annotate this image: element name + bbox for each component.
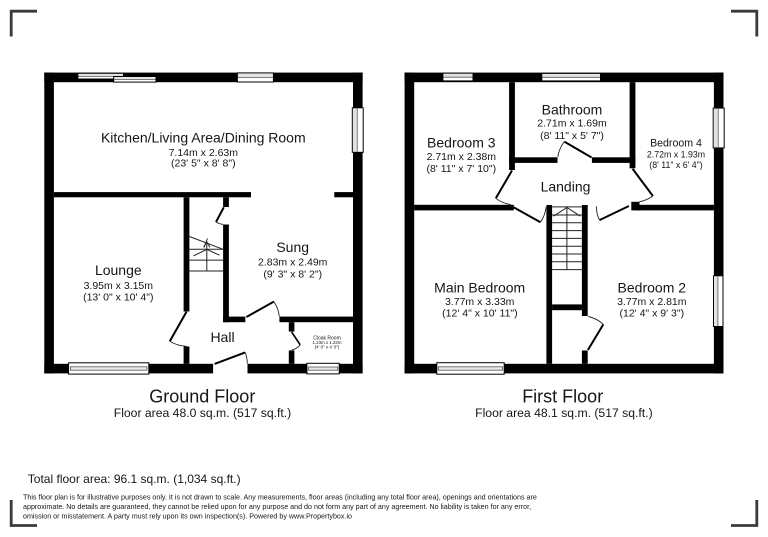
svg-text:3.77m x 2.81m: 3.77m x 2.81m xyxy=(617,296,687,308)
svg-text:(4' 0" x 4' 0"): (4' 0" x 4' 0") xyxy=(315,345,340,350)
svg-text:Bedroom 3: Bedroom 3 xyxy=(427,134,496,150)
svg-text:Hall: Hall xyxy=(210,329,234,345)
svg-text:(12' 4" x 9' 3"): (12' 4" x 9' 3") xyxy=(620,308,685,320)
svg-text:Kitchen/Living Area/Dining Roo: Kitchen/Living Area/Dining Room xyxy=(101,129,306,145)
svg-text:(12' 4" x 10' 11"): (12' 4" x 10' 11") xyxy=(442,308,517,320)
svg-text:First Floor: First Floor xyxy=(522,387,603,407)
svg-text:(8' 11" x 5' 7"): (8' 11" x 5' 7") xyxy=(540,130,604,142)
svg-text:Lounge: Lounge xyxy=(95,262,142,278)
svg-text:omission or misstatement. A pa: omission or misstatement. A party must r… xyxy=(23,513,352,521)
svg-text:3.77m x 3.33m: 3.77m x 3.33m xyxy=(445,296,515,308)
svg-text:(23' 5" x 8' 8"): (23' 5" x 8' 8") xyxy=(171,158,236,170)
svg-text:Landing: Landing xyxy=(541,179,591,195)
svg-text:3.95m x 3.15m: 3.95m x 3.15m xyxy=(84,280,154,292)
svg-text:approximate. No details are gu: approximate. No details are guaranteed, … xyxy=(23,503,531,511)
svg-text:Main Bedroom: Main Bedroom xyxy=(434,280,525,296)
svg-text:Floor area 48.0 sq.m. (517 sq.: Floor area 48.0 sq.m. (517 sq.ft.) xyxy=(114,406,291,420)
svg-text:2.72m x 1.93m: 2.72m x 1.93m xyxy=(647,150,705,160)
svg-text:2.83m x 2.49m: 2.83m x 2.49m xyxy=(258,257,328,269)
svg-text:This floor plan is for illustr: This floor plan is for illustrative purp… xyxy=(23,493,537,501)
svg-text:(8' 11" x 7' 10"): (8' 11" x 7' 10") xyxy=(426,163,496,175)
svg-text:Ground Floor: Ground Floor xyxy=(149,387,255,407)
svg-text:Floor area 48.1 sq.m. (517 sq.: Floor area 48.1 sq.m. (517 sq.ft.) xyxy=(475,406,652,420)
svg-text:Bathroom: Bathroom xyxy=(542,102,603,118)
svg-text:Total floor area: 96.1 sq.m. (: Total floor area: 96.1 sq.m. (1,034 sq.f… xyxy=(28,472,241,486)
svg-text:(13' 0" x 10' 4"): (13' 0" x 10' 4") xyxy=(83,292,153,304)
svg-text:(9' 3" x 8' 2"): (9' 3" x 8' 2") xyxy=(263,268,322,280)
svg-text:Bedroom 2: Bedroom 2 xyxy=(618,280,687,296)
svg-text:2.71m x 2.38m: 2.71m x 2.38m xyxy=(427,151,497,163)
svg-text:2.71m x 1.69m: 2.71m x 1.69m xyxy=(537,118,607,130)
svg-text:(8' 11" x 6' 4"): (8' 11" x 6' 4") xyxy=(649,160,703,170)
svg-text:Bedroom 4: Bedroom 4 xyxy=(650,137,702,149)
svg-text:Sung: Sung xyxy=(276,239,309,255)
